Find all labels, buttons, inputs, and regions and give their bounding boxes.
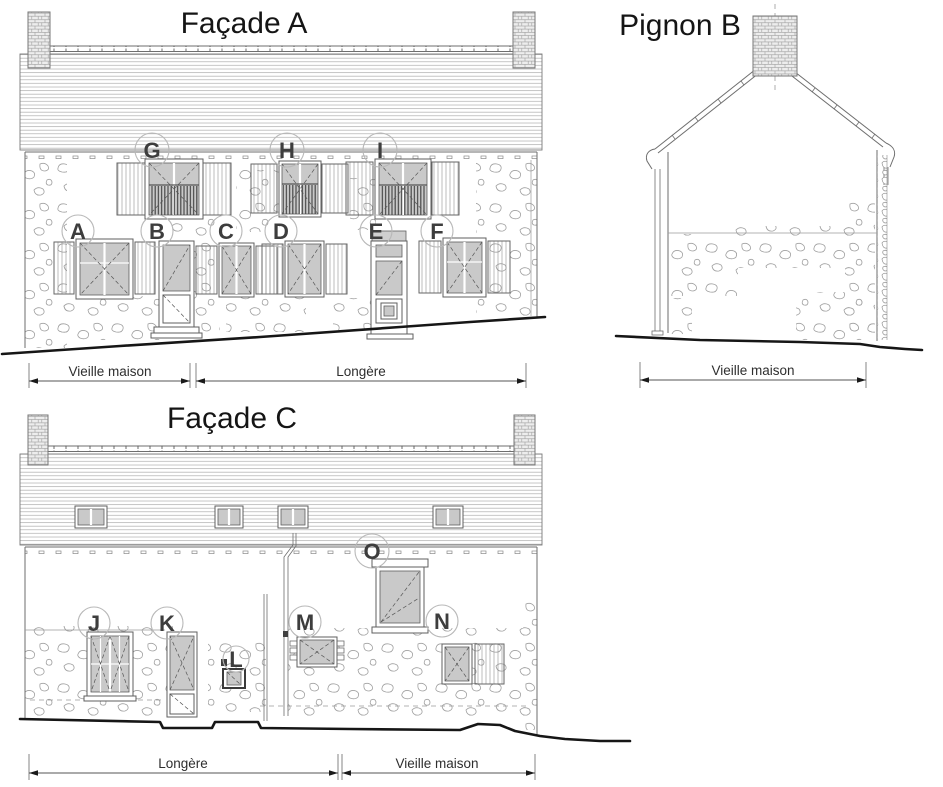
ground-line-pignon-b (616, 336, 922, 350)
shutter-left (262, 244, 283, 294)
door-step (151, 333, 202, 338)
chimney-left (28, 415, 48, 465)
opening-label-g: G (143, 138, 160, 163)
eaves-course (25, 549, 537, 554)
shutter-left (54, 242, 74, 294)
shutter-left (419, 241, 441, 293)
window-g (117, 159, 231, 219)
facade-c-title: Façade C (167, 402, 297, 435)
shutter-right (203, 163, 231, 215)
shutter-left (117, 163, 145, 215)
skylight-4 (433, 506, 463, 528)
sill (372, 627, 428, 633)
elevation-drawing: Façade A (0, 0, 943, 787)
window-o (372, 559, 428, 633)
shutter-left (251, 164, 277, 213)
railing (283, 185, 317, 214)
roof-slope (20, 54, 542, 150)
shutter-right (488, 241, 510, 293)
skylight-3 (278, 506, 308, 528)
shutter-left (196, 246, 217, 294)
ridge-tiles (48, 446, 514, 452)
opening-label-c: C (218, 219, 234, 244)
dimension-label: Vieille maison (711, 363, 794, 378)
window-i (346, 159, 459, 219)
window-d (262, 241, 347, 297)
door-b (151, 241, 202, 338)
sill (84, 696, 136, 701)
ground-line-facade-c (20, 719, 630, 741)
window-j (84, 632, 136, 701)
shutter-left (346, 162, 373, 215)
quoin-column (877, 155, 887, 340)
opening-label-h: H (279, 138, 295, 163)
shutter-right (432, 162, 459, 215)
shutter-right (326, 244, 347, 294)
gutter-downpipe-left (646, 149, 663, 335)
opening-label-f: F (430, 219, 443, 244)
pignon-b-stonework (668, 200, 875, 340)
opening-label-k: K (159, 611, 175, 636)
opening-label-a: A (70, 219, 86, 244)
railing (380, 186, 426, 215)
pignon-b-dimensions: Vieille maison (640, 362, 866, 388)
facade-a: Façade A (2, 7, 545, 388)
pignon-b-title: Pignon B (619, 9, 741, 42)
facade-c-dimensions: Longère Vieille maison (29, 754, 535, 780)
pignon-b: Pignon B (616, 4, 922, 388)
ridge-tiles (50, 46, 513, 52)
chimney-left (28, 12, 50, 68)
facade-c-roof (20, 446, 542, 555)
facade-c: Façade C (20, 402, 630, 780)
dimension-label: Vieille maison (68, 364, 151, 379)
chimney-right (513, 12, 535, 68)
architectural-elevation-sheet: Façade A (0, 0, 943, 787)
window-h (251, 161, 348, 217)
shutter-right (322, 164, 348, 213)
opening-label-d: D (273, 219, 289, 244)
opening-label-o: O (363, 539, 380, 564)
opening-label-m: M (296, 610, 314, 635)
railing (150, 186, 198, 215)
skylight-2 (215, 506, 243, 528)
chimney-right (514, 415, 535, 465)
window-a (54, 239, 155, 299)
opening-label-n: N (434, 609, 450, 634)
opening-label-j: J (88, 611, 100, 636)
door-step (154, 327, 199, 333)
door-step (367, 334, 413, 339)
dimension-label: Vieille maison (395, 756, 478, 771)
opening-label-e: E (369, 219, 384, 244)
opening-label-l: L (229, 647, 242, 672)
opening-label-b: B (149, 219, 165, 244)
dimension-label: Longère (336, 364, 386, 379)
roof-slope (20, 454, 542, 545)
facade-a-title: Façade A (181, 7, 308, 40)
dimension-label: Longère (158, 756, 208, 771)
opening-label-i: I (377, 138, 383, 163)
facade-a-dimensions: Vieille maison Longère (29, 363, 526, 388)
shutter-right (475, 644, 504, 684)
chimney (753, 16, 797, 76)
shutter-right (135, 242, 155, 294)
skylight-1 (75, 506, 107, 528)
door-k (167, 632, 197, 717)
